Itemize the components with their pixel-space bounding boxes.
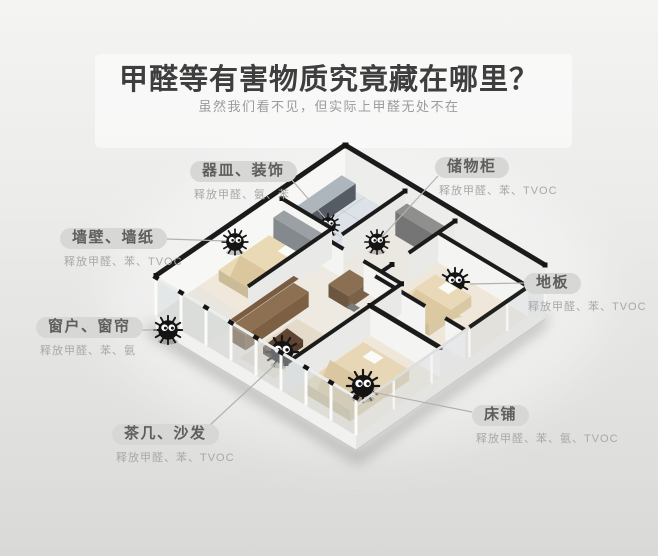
callout-releases: 释放甲醛、氨、苯 [194, 186, 297, 202]
callout-wall-wallpaper: 墙壁、墙纸 释放甲醛、苯、TVOC [60, 228, 183, 269]
callout-pill: 地板 [524, 273, 581, 294]
callout-releases: 释放甲醛、苯、氨 [40, 342, 143, 358]
callout-bed: 床铺 释放甲醛、苯、氨、TVOC [472, 405, 619, 446]
callout-floor: 地板 释放甲醛、苯、TVOC [524, 273, 647, 314]
callout-pill: 器皿、装饰 [190, 161, 297, 182]
callout-pill: 墙壁、墙纸 [60, 228, 167, 249]
callout-window-curtain: 窗户、窗帘 释放甲醛、苯、氨 [36, 317, 143, 358]
callout-pill: 茶几、沙发 [112, 424, 219, 445]
callout-pill: 储物柜 [435, 157, 509, 178]
callout-releases: 释放甲醛、苯、氨、TVOC [476, 430, 619, 446]
callout-storage-cabinet: 储物柜 释放甲醛、苯、TVOC [435, 157, 558, 198]
callout-releases: 释放甲醛、苯、TVOC [116, 449, 235, 465]
callout-tea-table-sofa: 茶几、沙发 释放甲醛、苯、TVOC [112, 424, 235, 465]
callout-pill: 床铺 [472, 405, 529, 426]
callout-dishes-decor: 器皿、装饰 释放甲醛、氨、苯 [190, 161, 297, 202]
callout-pill: 窗户、窗帘 [36, 317, 143, 338]
infographic-stage: 甲醛等有害物质究竟藏在哪里？ 虽然我们看不见，但实际上甲醛无处不在 [0, 0, 658, 556]
callout-releases: 释放甲醛、苯、TVOC [439, 182, 558, 198]
callout-releases: 释放甲醛、苯、TVOC [64, 253, 183, 269]
callout-releases: 释放甲醛、苯、TVOC [528, 298, 647, 314]
